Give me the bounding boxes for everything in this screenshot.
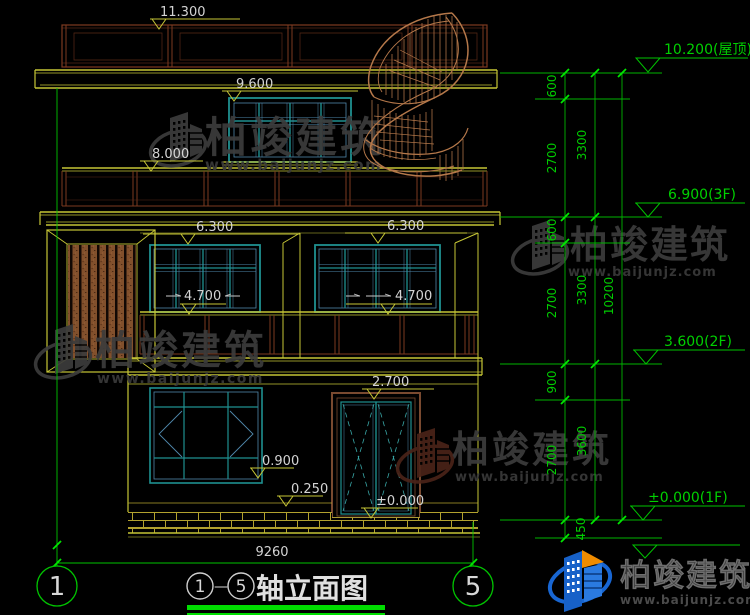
level-2f-label: 3.600(2F) [664, 334, 732, 350]
dim-0900: 0.900 [262, 454, 299, 469]
watermark-top-center: 柏竣建筑 www.baijunjz.com [147, 112, 385, 174]
chain-dim: 2700 [545, 288, 559, 319]
dim-0250: 0.250 [291, 482, 328, 497]
chain-dim: 900 [545, 371, 559, 394]
drawing-title: 1 — 5 轴立面图 [187, 572, 385, 615]
watermark-brand: 柏竣建筑 [205, 113, 385, 162]
watermark-url: www.baijunjz.com [455, 470, 604, 485]
dim-6300-left: 6.300 [196, 220, 233, 235]
overall-width-dimension: 9260 [255, 545, 288, 560]
watermark-url: www.baijunjz.com [97, 371, 264, 387]
title-axis-start: 1 [195, 577, 206, 597]
axis-bubble-right-number: 5 [465, 572, 482, 602]
chain-dim: 3300 [575, 130, 589, 161]
axis-bubble-left-number: 1 [49, 572, 66, 602]
dim-11300: 11.300 [160, 5, 206, 20]
watermark-url: www.baijunjz.com [205, 156, 382, 174]
dim-9600: 9.600 [236, 77, 273, 92]
chain-dim: 3600 [575, 426, 589, 457]
dim-4700-left: 4.700 [184, 289, 221, 304]
chain-dim: 2700 [545, 445, 559, 476]
title-dash: — [214, 579, 228, 595]
watermark-url: www.baijunjz.com [568, 265, 717, 280]
brand-url: www.baijunjz.com [620, 593, 750, 607]
watermark-left-middle: 柏竣建筑 www.baijunjz.com [32, 324, 267, 387]
title-axis-end: 5 [236, 577, 247, 597]
dim-6300-right: 6.300 [387, 219, 424, 234]
level-roof-label: 10.200(屋顶) [664, 42, 750, 58]
dim-4700-right: 4.700 [395, 289, 432, 304]
cad-canvas: 柏竣建筑 www.baijunjz.com 柏竣建筑 www.baijunjz.… [0, 0, 750, 615]
dim-0000: ±0.000 [376, 494, 424, 509]
axis-bubble-right: 5 [453, 566, 493, 606]
watermark-brand: 柏竣建筑 [95, 328, 267, 374]
dim-8000: 8.000 [152, 147, 189, 162]
chain-dim: 600 [545, 219, 559, 242]
brand-name: 柏竣建筑 [620, 558, 750, 594]
chain-dim: 3300 [575, 275, 589, 306]
chain-dim: 450 [574, 518, 588, 541]
title-label: 轴立面图 [256, 572, 368, 605]
dim-2700: 2.700 [372, 375, 409, 390]
title-underline [187, 605, 385, 610]
elevation-drawing: 柏竣建筑 www.baijunjz.com 柏竣建筑 www.baijunjz.… [0, 0, 750, 615]
chain-dim: 10200 [602, 277, 616, 315]
chain-dim: 2700 [545, 143, 559, 174]
level-3f-label: 6.900(3F) [668, 187, 736, 203]
chain-dim: 600 [545, 75, 559, 98]
baijun-brand-logo: 柏竣建筑 www.baijunjz.com [545, 550, 750, 612]
axis-bubble-left: 1 [37, 566, 77, 606]
level-1f-label: ±0.000(1F) [648, 490, 728, 506]
watermark-brand: 柏竣建筑 [570, 223, 730, 267]
